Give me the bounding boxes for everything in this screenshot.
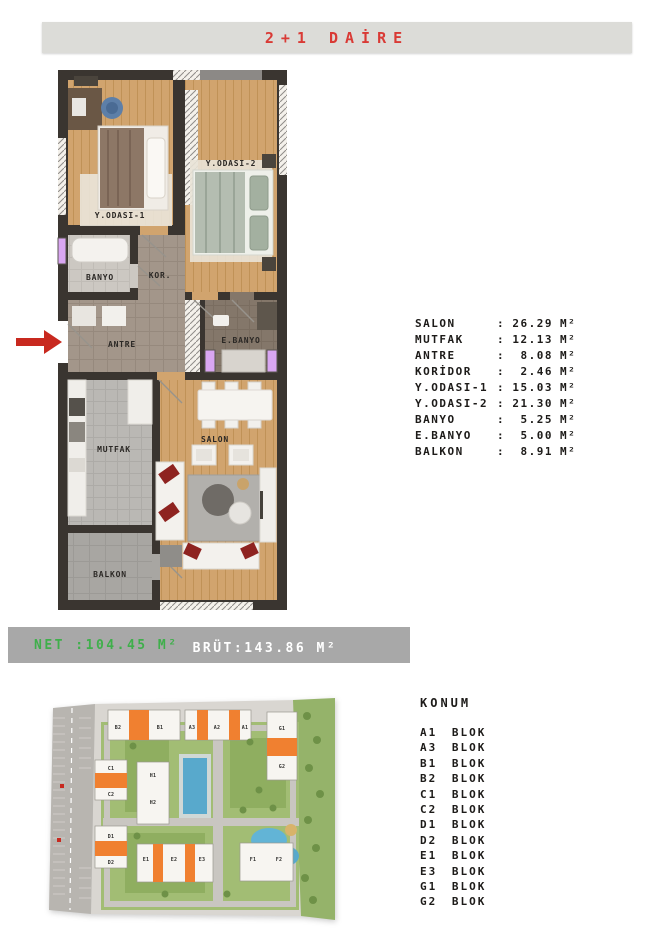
net-area-value: NET :104.45 M² xyxy=(34,638,179,653)
konum-block-item: E3 BLOK xyxy=(420,864,620,879)
highlight-A1 xyxy=(229,710,240,740)
koridor-floor xyxy=(138,235,185,300)
area-row: BANYO:5.25M² xyxy=(415,412,625,428)
konum-block-item: C1 BLOK xyxy=(420,787,620,802)
site-label-H2: H2 xyxy=(150,800,157,806)
site-label-A2: A2 xyxy=(214,725,221,731)
area-row: ANTRE:8.08M² xyxy=(415,348,625,364)
path-horizontal xyxy=(103,818,299,826)
road-marker xyxy=(57,838,61,842)
playground xyxy=(285,824,297,836)
site-label-H1: H1 xyxy=(150,773,157,779)
label-ebanyo: E.BANYO xyxy=(221,336,260,345)
balkon-floor xyxy=(68,533,152,600)
site-label-G1: G1 xyxy=(279,726,286,732)
window-ebanyo-purple-left xyxy=(205,350,215,372)
site-label-C1: C1 xyxy=(108,766,115,772)
window-salon xyxy=(160,602,253,610)
site-label-A1: A1 xyxy=(242,725,249,731)
highlight-E1 xyxy=(153,844,163,882)
site-label-A3: A3 xyxy=(189,725,196,731)
area-row: Y.ODASI-2:21.30M² xyxy=(415,396,625,412)
block-F xyxy=(240,843,293,881)
label-banyo: BANYO xyxy=(86,273,114,282)
light-shaft xyxy=(185,300,200,372)
area-row: Y.ODASI-1:15.03M² xyxy=(415,380,625,396)
area-row: BALKON:8.91M² xyxy=(415,444,625,460)
highlight-B xyxy=(129,710,149,740)
pool xyxy=(183,758,207,814)
site-label-E2: E2 xyxy=(171,857,178,863)
page-header-bar: 2+1 DAİRE xyxy=(42,22,632,53)
highlight-E3 xyxy=(185,844,195,882)
konum-block-item: D2 BLOK xyxy=(420,833,620,848)
window-bedroom2 xyxy=(279,85,287,175)
door-gap-bedroom2 xyxy=(192,292,218,300)
door-gap-bedroom1 xyxy=(140,225,168,235)
highlight-G xyxy=(267,738,297,756)
page-title: 2+1 DAİRE xyxy=(265,29,409,47)
konum-block-item: C2 BLOK xyxy=(420,802,620,817)
konum-block-item: G1 BLOK xyxy=(420,879,620,894)
label-balkon: BALKON xyxy=(93,570,127,579)
site-label-E1: E1 xyxy=(143,857,150,863)
konum-block-item: A1 BLOK xyxy=(420,725,620,740)
window-top xyxy=(173,70,200,80)
path-vertical xyxy=(213,726,223,906)
site-label-C2: C2 xyxy=(108,792,115,798)
window-ebanyo-purple-right xyxy=(267,350,277,372)
site-plan-svg: B2 B1 A3 A2 A1 G1 G2 C1 C2 H1 H2 D1 D2 E… xyxy=(45,698,335,920)
label-mutfak: MUTFAK xyxy=(97,445,131,454)
door-gap-ebanyo xyxy=(230,292,254,300)
site-label-D1: D1 xyxy=(108,834,115,840)
konum-block-item: B2 BLOK xyxy=(420,771,620,786)
site-label-E3: E3 xyxy=(199,857,206,863)
area-row: E.BANYO:5.00M² xyxy=(415,428,625,444)
area-row: SALON:26.29M² xyxy=(415,316,625,332)
site-label-G2: G2 xyxy=(279,764,286,770)
window-banyo-purple xyxy=(58,238,66,264)
konum-block-item: E1 BLOK xyxy=(420,848,620,863)
road xyxy=(49,704,95,914)
label-bedroom1: Y.ODASI-1 xyxy=(95,211,146,220)
site-label-F1: F1 xyxy=(250,857,257,863)
area-row: MUTFAK:12.13M² xyxy=(415,332,625,348)
konum-section: KONUM A1 BLOK A3 BLOK B1 BLOK B2 BLOK C1… xyxy=(420,696,620,910)
label-koridor: KOR. xyxy=(149,271,171,280)
site-label-B2: B2 xyxy=(115,725,122,731)
floor-plan: Y.ODASI-1 Y.ODASI-2 BANYO KOR. ANTRE E.B… xyxy=(10,66,290,614)
label-bedroom2: Y.ODASI-2 xyxy=(206,159,257,168)
highlight-D xyxy=(95,841,127,856)
block-E xyxy=(137,844,213,882)
floor-plan-svg: Y.ODASI-1 Y.ODASI-2 BANYO KOR. ANTRE E.B… xyxy=(10,66,290,614)
label-antre: ANTRE xyxy=(108,340,136,349)
lintel-top xyxy=(200,70,262,80)
door-gap-banyo xyxy=(130,264,138,288)
door-gap-balkon xyxy=(152,554,160,580)
site-plan: B2 B1 A3 A2 A1 G1 G2 C1 C2 H1 H2 D1 D2 E… xyxy=(45,698,335,920)
highlight-A3 xyxy=(197,710,208,740)
door-gap-salon xyxy=(157,372,185,380)
site-label-D2: D2 xyxy=(108,860,115,866)
area-row: KORİDOR:2.46M² xyxy=(415,364,625,380)
block-H xyxy=(137,762,169,824)
konum-title: KONUM xyxy=(420,696,620,710)
road-marker xyxy=(60,784,64,788)
site-label-B1: B1 xyxy=(157,725,164,731)
konum-block-item: D1 BLOK xyxy=(420,817,620,832)
window-bedroom1 xyxy=(58,138,66,215)
site-label-F2: F2 xyxy=(276,857,283,863)
konum-block-item: G2 BLOK xyxy=(420,894,620,909)
brut-area-value: BRÜT:143.86 M² xyxy=(193,641,338,656)
konum-block-item: B1 BLOK xyxy=(420,756,620,771)
area-table: SALON:26.29M² MUTFAK:12.13M² ANTRE:8.08M… xyxy=(415,316,625,460)
highlight-C xyxy=(95,773,127,788)
net-brut-banner: NET :104.45 M² BRÜT:143.86 M² xyxy=(8,627,410,663)
label-salon: SALON xyxy=(201,435,229,444)
konum-block-item: A3 BLOK xyxy=(420,740,620,755)
